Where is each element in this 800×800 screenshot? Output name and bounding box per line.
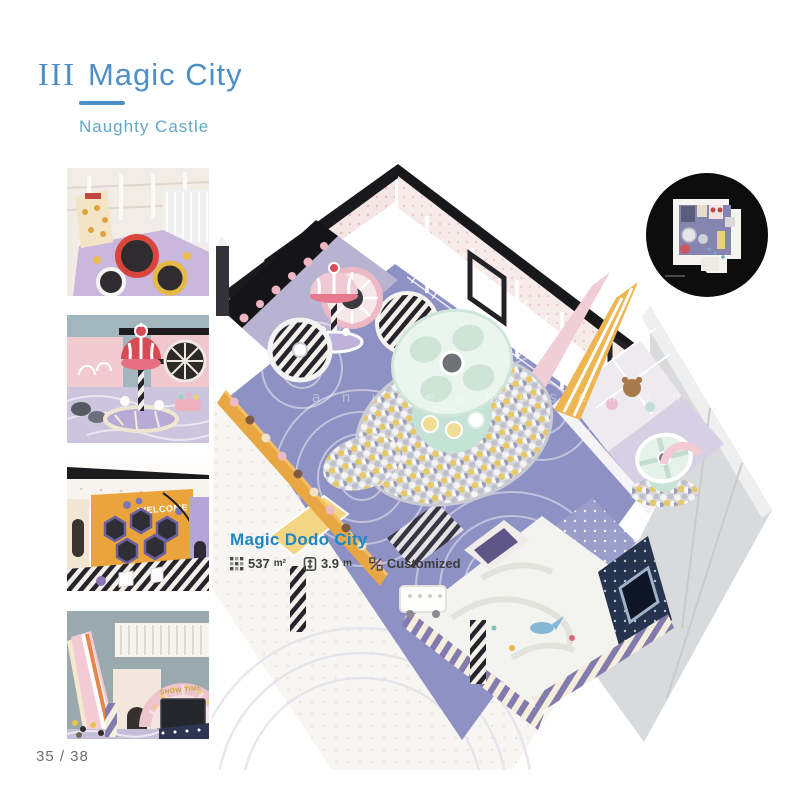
title-underline: [79, 101, 125, 105]
height-value: 3.9: [321, 556, 339, 571]
thumbnail-carousel-area: [67, 315, 209, 443]
project-info: Magic Dodo City 537m²: [230, 530, 461, 571]
height-range-icon: [303, 557, 317, 571]
project-name: Magic Dodo City: [230, 530, 461, 550]
stat-customized: Customized: [369, 556, 461, 571]
catalog-page: III Magic City Naughty Castle: [0, 0, 800, 800]
area-value: 537: [248, 556, 270, 571]
grid-area-icon: [230, 557, 244, 571]
wall-cut-pillar: [216, 246, 229, 316]
page-number: 35 / 38: [36, 748, 89, 765]
thumbnail-trampoline-area: [67, 168, 209, 296]
thumbnail-welcome-wall: WELCOME: [67, 463, 209, 591]
thumbnail-slide-stage: SHOW TIME: [67, 611, 209, 739]
customize-icon: [369, 557, 383, 571]
welcome-wall-scene: WELCOME: [67, 463, 209, 591]
floor-plan-inset: [645, 173, 771, 299]
page-subtitle: Naughty Castle: [79, 117, 209, 137]
chapter-roman-numeral: III: [38, 56, 76, 93]
striped-pillar-2: [468, 606, 488, 684]
toy-dinosaur: [530, 622, 554, 634]
page-header: III Magic City: [38, 56, 243, 93]
page-title: Magic City: [88, 57, 243, 93]
stat-height: 3.9m: [303, 556, 352, 571]
stat-area: 537m²: [230, 556, 286, 571]
area-unit: m²: [274, 558, 286, 569]
slide-stage-scene: SHOW TIME: [67, 611, 209, 739]
trampoline-scene: [67, 168, 209, 296]
customized-label: Customized: [387, 556, 461, 571]
carousel-scene: [67, 315, 209, 443]
height-unit: m: [343, 558, 352, 569]
project-stats: 537m² 3.9m Customized: [230, 556, 461, 571]
